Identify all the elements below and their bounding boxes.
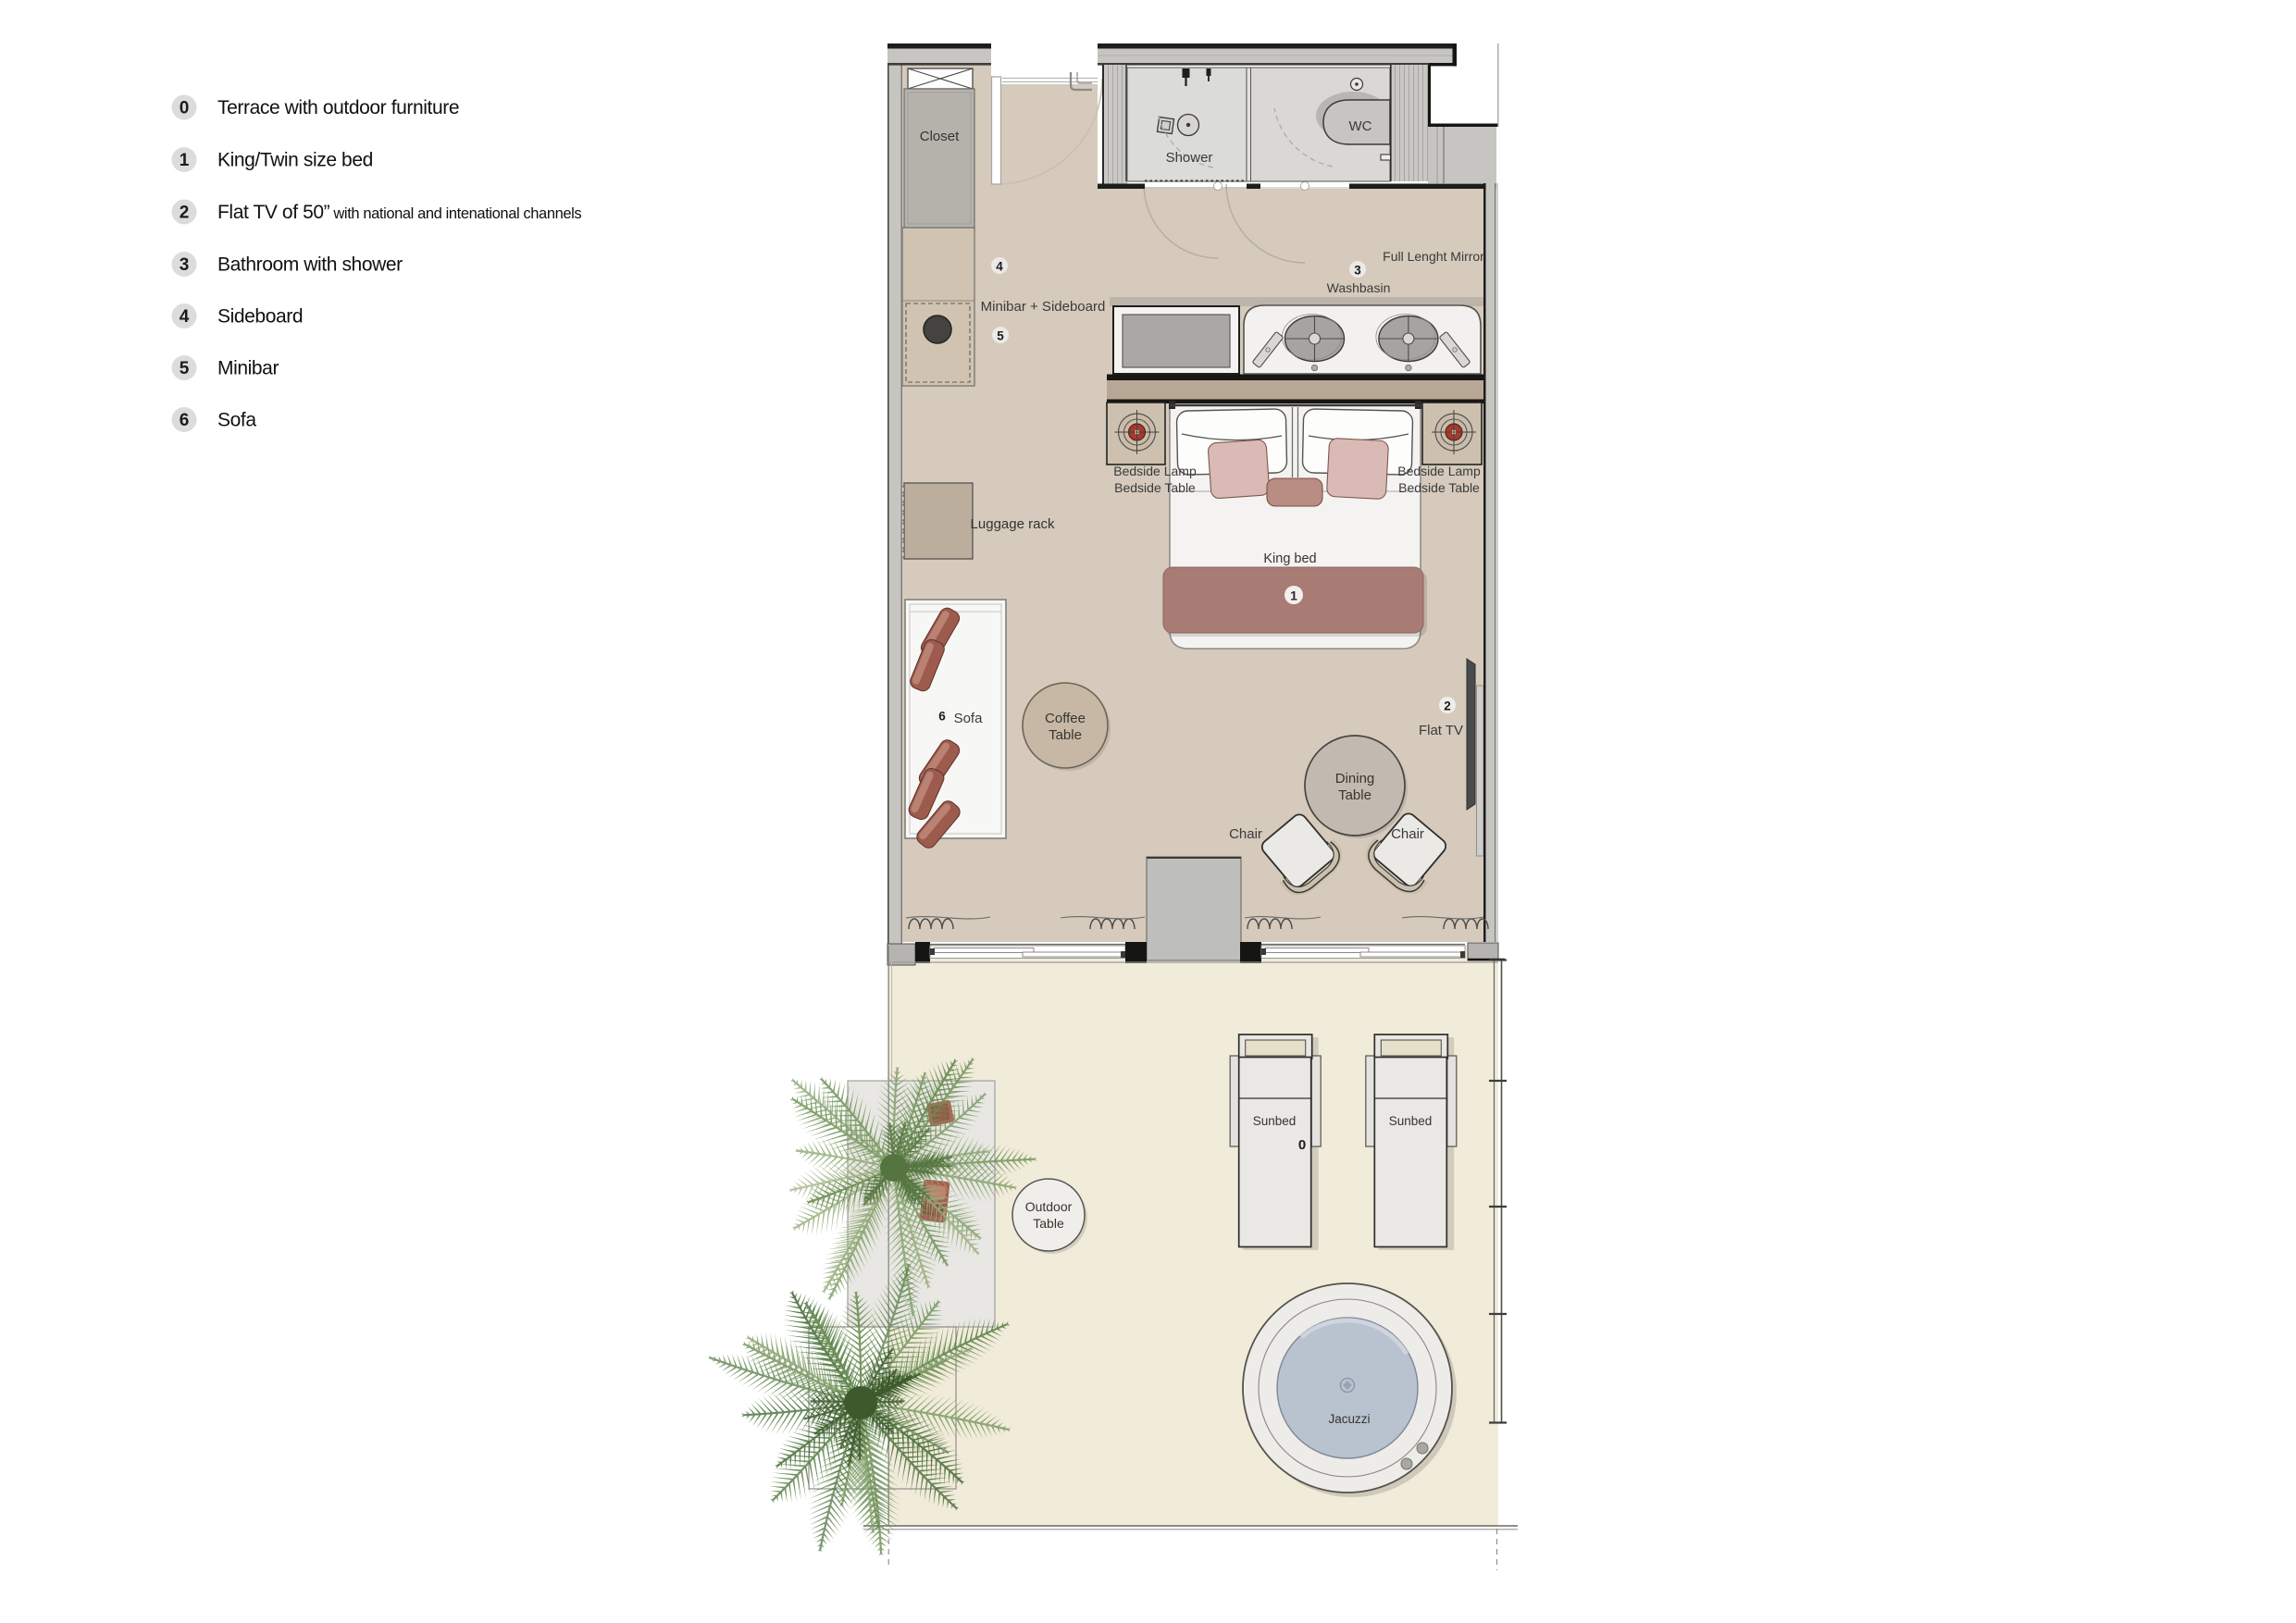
svg-text:Jacuzzi: Jacuzzi (1328, 1412, 1370, 1426)
svg-text:Coffee: Coffee (1045, 711, 1086, 726)
svg-text:5: 5 (180, 359, 190, 378)
svg-text:King bed: King bed (1263, 551, 1316, 566)
svg-text:Flat TV of 50” with national a: Flat TV of 50” with national and intenat… (217, 202, 581, 223)
svg-text:King/Twin size bed: King/Twin size bed (217, 150, 373, 171)
svg-text:Bathroom with shower: Bathroom with shower (217, 254, 403, 276)
svg-text:5: 5 (997, 329, 1004, 343)
svg-text:Table: Table (1338, 787, 1371, 803)
svg-text:Terrace with outdoor furniture: Terrace with outdoor furniture (217, 97, 459, 118)
svg-text:2: 2 (1444, 700, 1451, 713)
svg-text:Sofa: Sofa (954, 711, 984, 726)
svg-text:Sunbed: Sunbed (1253, 1114, 1297, 1128)
svg-text:Sofa: Sofa (217, 410, 256, 431)
svg-text:Sideboard: Sideboard (217, 306, 303, 328)
svg-text:Table: Table (1033, 1216, 1064, 1231)
svg-text:6: 6 (938, 710, 946, 724)
svg-text:Chair: Chair (1391, 826, 1424, 842)
svg-text:3: 3 (1354, 264, 1361, 278)
svg-text:Bedside Table: Bedside Table (1114, 480, 1196, 495)
svg-text:0: 0 (1298, 1137, 1306, 1153)
svg-text:Bedside Table: Bedside Table (1398, 480, 1480, 495)
svg-text:Minibar: Minibar (217, 358, 279, 379)
svg-text:4: 4 (996, 260, 1003, 274)
svg-text:3: 3 (180, 255, 190, 275)
svg-text:Dining: Dining (1335, 771, 1375, 787)
svg-text:Minibar + Sideboard: Minibar + Sideboard (981, 299, 1106, 315)
svg-text:Washbasin: Washbasin (1327, 280, 1391, 295)
svg-text:Flat TV: Flat TV (1419, 723, 1463, 738)
svg-text:4: 4 (180, 307, 190, 327)
svg-text:1: 1 (1290, 588, 1297, 603)
svg-text:Shower: Shower (1166, 150, 1213, 166)
svg-text:2: 2 (180, 204, 190, 223)
svg-text:Bedside Lamp: Bedside Lamp (1113, 464, 1197, 478)
svg-text:6: 6 (180, 411, 190, 430)
svg-text:0: 0 (180, 99, 190, 118)
svg-text:Closet: Closet (920, 129, 960, 144)
svg-text:Outdoor: Outdoor (1025, 1199, 1073, 1214)
svg-text:1: 1 (180, 151, 190, 170)
svg-text:Bedside Lamp: Bedside Lamp (1397, 464, 1481, 478)
svg-text:Full Lenght Mirror: Full Lenght Mirror (1383, 249, 1484, 264)
svg-text:Chair: Chair (1229, 826, 1262, 842)
svg-text:Table: Table (1049, 727, 1082, 743)
svg-text:Sunbed: Sunbed (1389, 1114, 1433, 1128)
svg-text:WC: WC (1349, 118, 1372, 134)
svg-text:Luggage rack: Luggage rack (971, 516, 1055, 532)
